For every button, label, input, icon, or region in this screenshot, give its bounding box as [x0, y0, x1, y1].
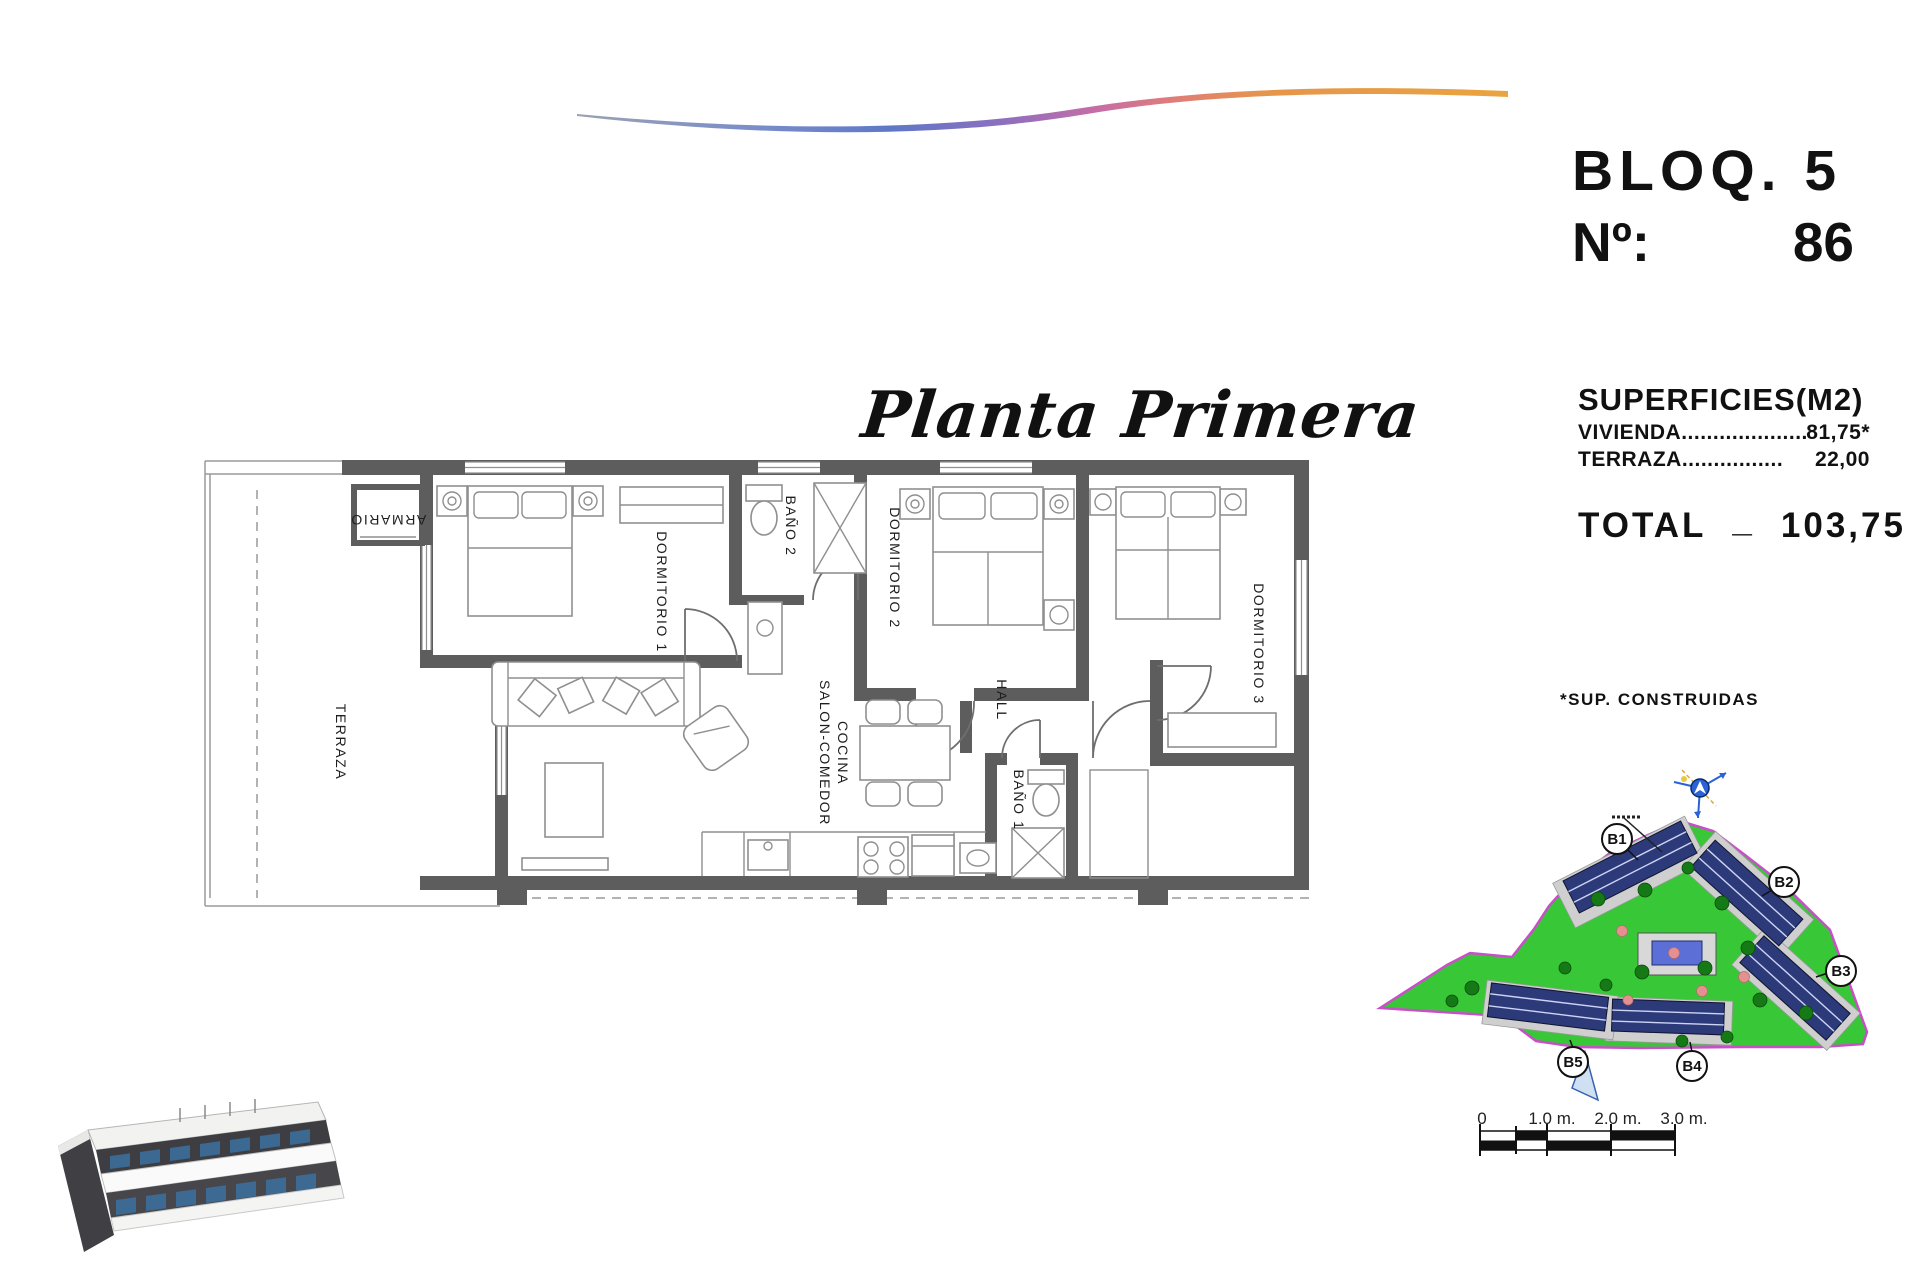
building-3d-sketch	[58, 1099, 540, 1252]
surface-row-vivienda: VIVIENDA .................... 81,75*	[1578, 421, 1870, 445]
svg-text:B4: B4	[1682, 1058, 1702, 1075]
toilet	[1033, 784, 1059, 816]
floor-plan: TERRAZA ARMARIO DORMITORIO 1 BAÑO 2 DORM…	[205, 460, 1310, 906]
room-label-bano2: BAÑO 2	[783, 496, 799, 557]
room-label-bano1: BAÑO 1	[1011, 770, 1027, 831]
room-label-terraza: TERRAZA	[333, 704, 349, 781]
svg-text:B5: B5	[1563, 1054, 1582, 1071]
plan-sheet: TERRAZA ARMARIO DORMITORIO 1 BAÑO 2 DORM…	[0, 0, 1920, 1280]
room-label-cocina: COCINA	[835, 721, 851, 785]
bedroom2-furniture	[900, 487, 1074, 630]
room-label-salon: SALON-COMEDOR	[817, 680, 833, 826]
room-label-armario: ARMARIO	[350, 512, 427, 528]
surfaces-footnote: *SUP. CONSTRUIDAS	[1560, 690, 1759, 710]
stair-core	[1090, 770, 1148, 878]
unit-header: BLOQ. 5 Nº: 86	[1572, 138, 1854, 274]
scale-bar: 0 1.0 m. 2.0 m. 3.0 m.	[1477, 1109, 1707, 1156]
bath2-furniture	[746, 483, 866, 674]
bedroom3-furniture	[1090, 487, 1276, 747]
room-label-dormitorio3: DORMITORIO 3	[1251, 583, 1267, 705]
scale-label-3m: 3.0 m.	[1660, 1109, 1707, 1128]
scale-label-2m: 2.0 m.	[1594, 1109, 1641, 1128]
block-title: BLOQ. 5	[1572, 138, 1854, 204]
vanity	[748, 602, 782, 674]
svg-text:B3: B3	[1831, 963, 1850, 980]
bed	[468, 486, 572, 616]
room-label-dormitorio1: DORMITORIO 1	[654, 531, 670, 653]
svg-text:B1: B1	[1607, 831, 1626, 848]
dining-table	[860, 726, 950, 780]
room-label-hall: HALL	[994, 679, 1010, 720]
surfaces-heading: SUPERFICIES(M2)	[1578, 382, 1906, 418]
kitchen-furniture	[702, 832, 986, 877]
number-value: 86	[1793, 210, 1854, 274]
bedroom1-furniture	[437, 486, 723, 616]
brand-swoosh	[577, 88, 1508, 132]
room-label-dormitorio2: DORMITORIO 2	[887, 507, 903, 629]
surfaces-panel: SUPERFICIES(M2) VIVIENDA ...............…	[1578, 382, 1906, 546]
toilet	[751, 501, 777, 535]
compass-icon	[1674, 770, 1726, 818]
sink	[960, 843, 996, 873]
coffee-table	[545, 763, 603, 837]
dresser	[1168, 713, 1276, 747]
scale-label-0: 0	[1477, 1109, 1486, 1128]
surfaces-total: TOTAL _ 103,75	[1578, 506, 1906, 546]
page-title: Planta Primera	[858, 378, 1423, 453]
number-label: Nº:	[1572, 210, 1650, 274]
kitchen-sink	[748, 840, 788, 870]
scale-label-1m: 1.0 m.	[1528, 1109, 1575, 1128]
svg-text:B2: B2	[1774, 874, 1793, 891]
site-plan: B1 B2 B3 B4 B5	[1380, 770, 1867, 1100]
tv-unit	[522, 858, 608, 870]
fridge	[912, 835, 954, 876]
surface-row-terraza: TERRAZA ................ 22,00	[1578, 448, 1870, 472]
